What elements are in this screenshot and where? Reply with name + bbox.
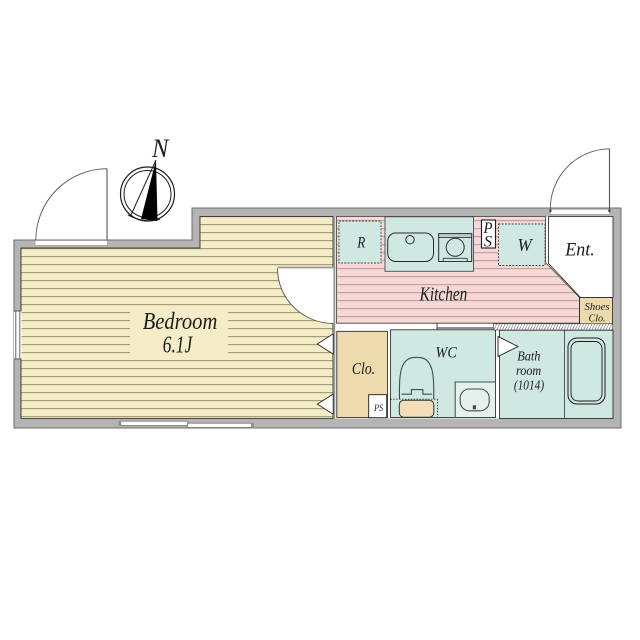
svg-text:(1014): (1014): [514, 378, 545, 393]
svg-text:Clo.: Clo.: [352, 359, 375, 378]
svg-text:N: N: [151, 134, 170, 163]
svg-text:WC: WC: [436, 345, 458, 362]
svg-text:S: S: [484, 233, 492, 250]
svg-text:W: W: [518, 235, 534, 255]
svg-text:PS: PS: [373, 404, 383, 414]
svg-text:Bath: Bath: [517, 348, 540, 363]
svg-text:Kitchen: Kitchen: [419, 283, 467, 305]
svg-text:Clo.: Clo.: [589, 313, 606, 324]
svg-text:Bedroom: Bedroom: [143, 309, 218, 335]
svg-text:Shoes: Shoes: [585, 302, 610, 313]
svg-text:R: R: [356, 235, 365, 252]
svg-text:6.1J: 6.1J: [163, 332, 193, 358]
svg-text:room: room: [516, 363, 542, 378]
svg-text:Ent.: Ent.: [564, 240, 594, 261]
